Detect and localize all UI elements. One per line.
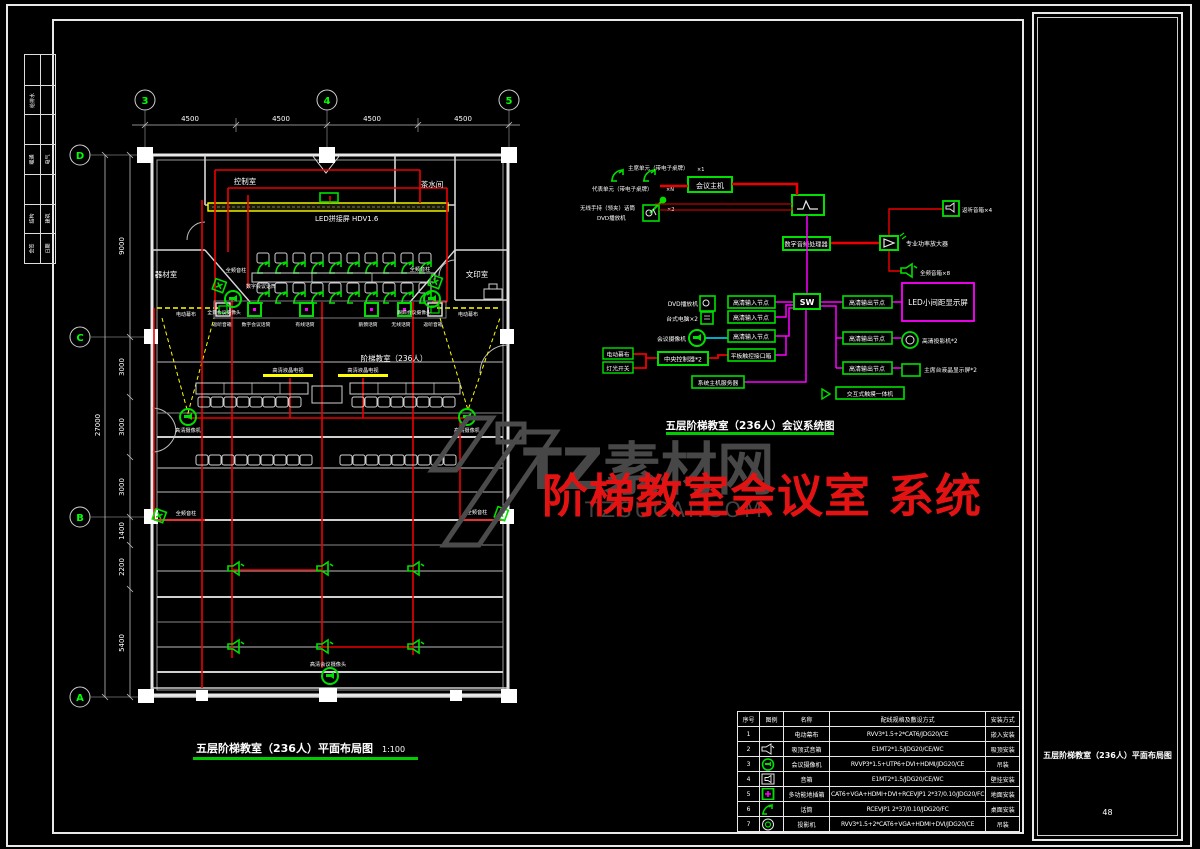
- signature-strip: 给排水 暖通电气 结构建筑 会签日期: [24, 54, 56, 264]
- sheet-border: [6, 4, 1192, 847]
- title-block-panel: 五层阶梯教室（236人）平面布局图 48: [1032, 12, 1183, 841]
- discipline-electrical: 电气: [44, 154, 51, 164]
- discipline-hvac: 暖通: [29, 154, 36, 164]
- date-label: 日期: [44, 244, 51, 254]
- title-block-inner-border: [1037, 17, 1178, 836]
- discipline-structure: 结构: [29, 214, 36, 224]
- sheet-title: 五层阶梯教室（236人）平面布局图: [1034, 750, 1181, 761]
- signature-label: 会签: [29, 244, 36, 254]
- page-number: 48: [1034, 808, 1181, 817]
- discipline-architecture: 建筑: [44, 214, 51, 224]
- cad-sheet: { "frame": {"page_no": "48", "panel_titl…: [0, 0, 1200, 849]
- discipline-plumbing: 给排水: [29, 93, 36, 108]
